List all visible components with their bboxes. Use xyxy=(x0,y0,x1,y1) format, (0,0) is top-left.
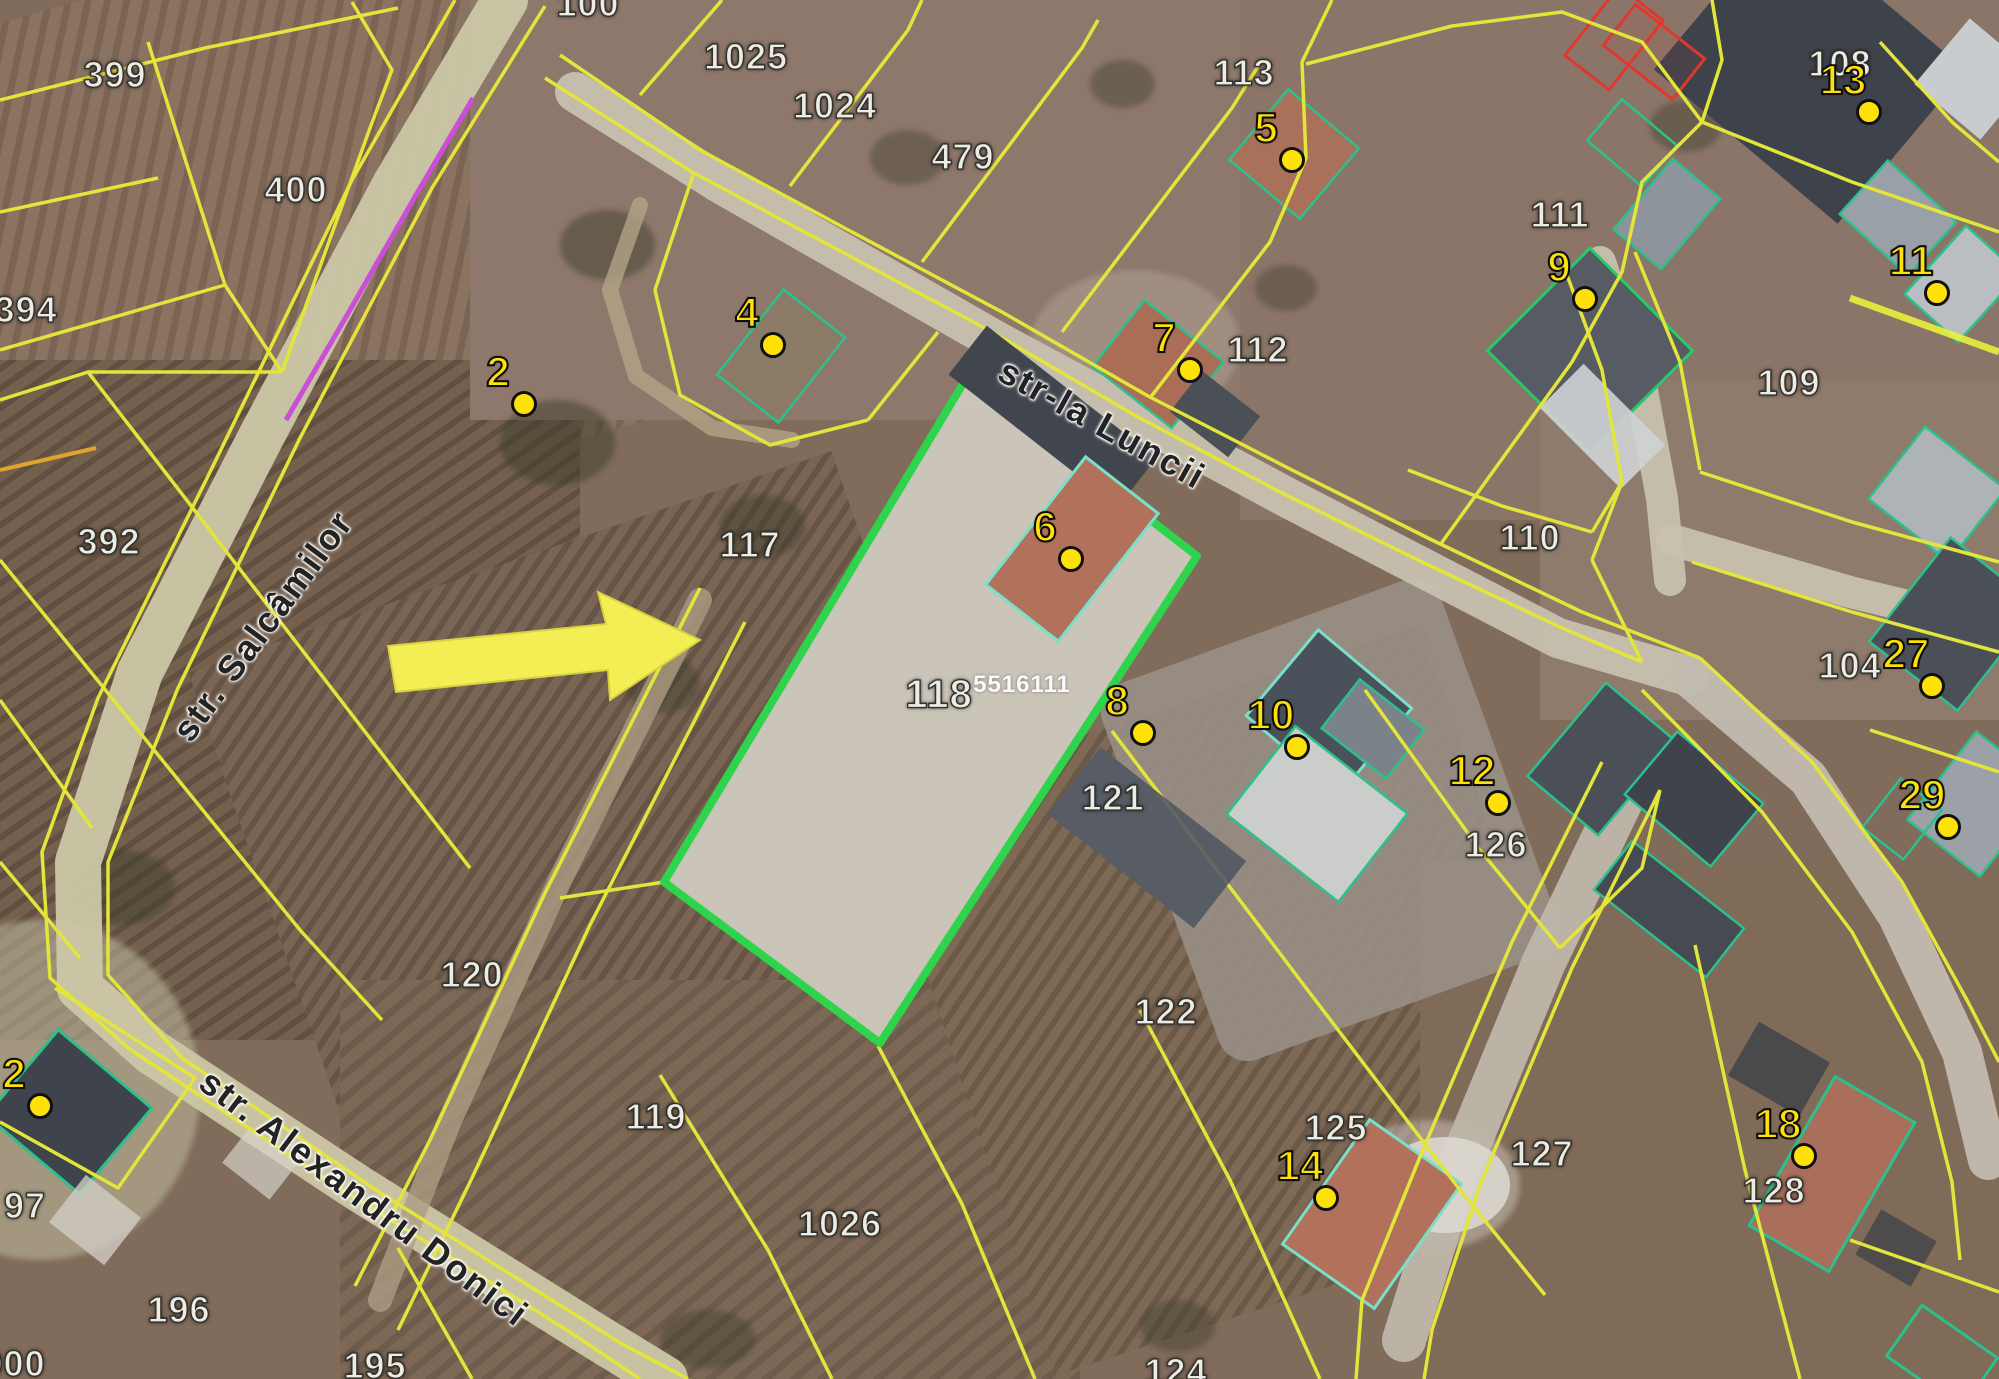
map-marker-number-8: 8 xyxy=(1105,677,1128,725)
parcel-label-394: 394 xyxy=(0,289,58,331)
parcel-label-000: 000 xyxy=(0,1343,46,1379)
parcel-label-111: 111 xyxy=(1530,194,1589,236)
map-marker-dot-13[interactable] xyxy=(1856,99,1882,125)
map-marker-number-5: 5 xyxy=(1254,104,1277,152)
map-marker-number-4: 4 xyxy=(735,289,758,337)
parcel-label-1026: 1026 xyxy=(798,1203,882,1245)
cadastral-map: 3994003943921001025102447911311211110810… xyxy=(0,0,1999,1379)
map-marker-dot-8[interactable] xyxy=(1130,720,1156,746)
parcel-label-1025: 1025 xyxy=(704,36,788,78)
parcel-label-195: 195 xyxy=(343,1345,406,1379)
map-marker-number-27: 27 xyxy=(1883,630,1930,678)
map-marker-number-9: 9 xyxy=(1547,243,1570,291)
parcel-label-479: 479 xyxy=(931,136,994,178)
parcel-label-1024: 1024 xyxy=(793,85,877,127)
parcel-label-100: 100 xyxy=(556,0,619,25)
map-marker-number-29: 29 xyxy=(1899,771,1946,819)
map-marker-number-2: 2 xyxy=(486,348,509,396)
parcel-label-196: 196 xyxy=(147,1289,210,1331)
cadastral-code-label: 5516111 xyxy=(973,671,1071,699)
map-marker-dot-7[interactable] xyxy=(1177,357,1203,383)
parcel-label-120: 120 xyxy=(440,954,503,996)
street-label: str. Salcâmilor xyxy=(164,503,362,750)
map-marker-number-10: 10 xyxy=(1248,691,1295,739)
parcel-label-121: 121 xyxy=(1081,777,1144,819)
parcel-label-104: 104 xyxy=(1818,645,1881,687)
map-marker-dot-27[interactable] xyxy=(1919,673,1945,699)
parcel-label-122: 122 xyxy=(1134,991,1197,1033)
map-marker-number-12: 12 xyxy=(1449,747,1496,795)
map-marker-dot-18[interactable] xyxy=(1791,1143,1817,1169)
map-marker-dot-29[interactable] xyxy=(1935,814,1961,840)
map-marker-dot-2[interactable] xyxy=(27,1093,53,1119)
map-marker-number-6: 6 xyxy=(1033,503,1056,551)
map-marker-dot-4[interactable] xyxy=(760,332,786,358)
parcel-label-112: 112 xyxy=(1227,329,1288,371)
map-marker-number-2: 2 xyxy=(2,1050,25,1098)
map-marker-dot-2[interactable] xyxy=(511,391,537,417)
parcel-label-119: 119 xyxy=(625,1096,686,1138)
parcel-label-113: 113 xyxy=(1213,52,1274,94)
map-marker-dot-11[interactable] xyxy=(1924,280,1950,306)
parcel-label-127: 127 xyxy=(1510,1133,1573,1175)
parcel-label-118: 118 xyxy=(905,673,973,718)
parcel-label-128: 128 xyxy=(1742,1170,1805,1212)
map-marker-number-13: 13 xyxy=(1820,56,1867,104)
map-marker-number-14: 14 xyxy=(1277,1142,1324,1190)
parcel-label-126: 126 xyxy=(1464,824,1527,866)
map-marker-dot-6[interactable] xyxy=(1058,546,1084,572)
parcel-label-392: 392 xyxy=(77,521,140,563)
map-marker-number-11: 11 xyxy=(1889,237,1933,285)
map-marker-dot-5[interactable] xyxy=(1279,147,1305,173)
parcel-label-110: 110 xyxy=(1499,517,1560,559)
map-marker-dot-9[interactable] xyxy=(1572,286,1598,312)
parcel-label-117: 117 xyxy=(719,524,780,566)
map-marker-dot-12[interactable] xyxy=(1485,790,1511,816)
parcel-label-400: 400 xyxy=(264,169,327,211)
map-marker-number-7: 7 xyxy=(1152,314,1175,362)
map-labels: 3994003943921001025102447911311211110810… xyxy=(0,0,1999,1379)
street-label: str. Alexandru Donici xyxy=(191,1061,536,1336)
parcel-label-125: 125 xyxy=(1304,1107,1367,1149)
parcel-label-124: 124 xyxy=(1144,1351,1207,1379)
map-marker-dot-10[interactable] xyxy=(1284,734,1310,760)
parcel-label-108: 108 xyxy=(1808,43,1871,85)
parcel-label-399: 399 xyxy=(83,54,146,96)
parcel-label-97: 97 xyxy=(4,1185,46,1227)
parcel-label-109: 109 xyxy=(1757,362,1820,404)
map-marker-dot-14[interactable] xyxy=(1313,1185,1339,1211)
map-marker-number-18: 18 xyxy=(1755,1100,1802,1148)
